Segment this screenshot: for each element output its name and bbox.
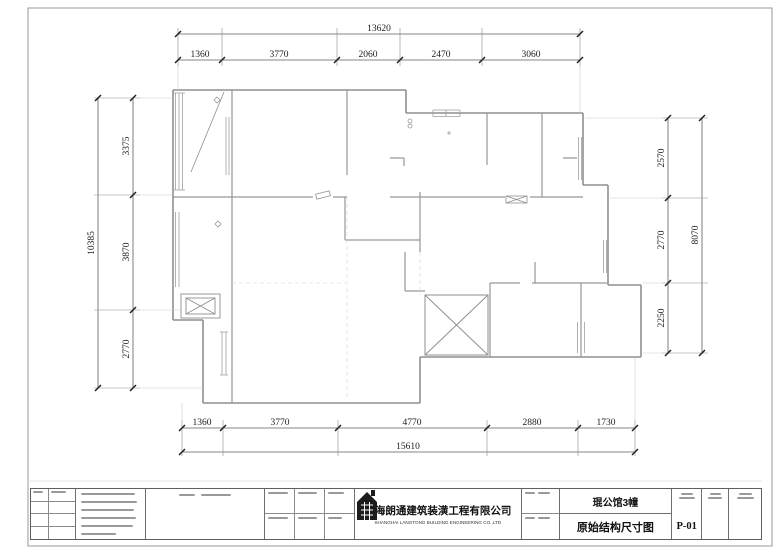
door-leaf	[316, 191, 331, 199]
dim-bottom-seg: 3770	[271, 418, 290, 428]
process-cells	[522, 489, 560, 539]
title-block: 上海朗通建筑装潢工程有限公司 SHANGHAI LANGTONG BUILDIN…	[30, 488, 762, 540]
dim-bottom-seg: 1360	[193, 418, 212, 428]
drawing-canvas: 13620 1360 3770 2060 2470 3060 1360 3770…	[0, 0, 780, 553]
drawing-number: P-01	[672, 521, 701, 532]
outer-walls	[173, 90, 641, 403]
company-logo-icon	[355, 489, 379, 521]
cad-sheet: 13620 1360 3770 2060 2470 3060 1360 3770…	[0, 0, 780, 553]
interior-walls	[173, 90, 607, 403]
elevator-shaft	[425, 295, 488, 355]
dimension-chain-bottom: 1360 3770 4770 2880 1730 15610	[193, 418, 616, 452]
dimension-chain-left: 10385 3375 3870 2770	[87, 136, 132, 358]
dim-top-seg: 2470	[432, 50, 451, 60]
dimension-lines	[98, 34, 702, 452]
floor-plan	[173, 90, 641, 403]
dim-bottom-seg: 2880	[523, 418, 542, 428]
project-name: 琨公馆3幢	[593, 494, 639, 509]
dim-top-seg: 3770	[270, 50, 289, 60]
dim-left-seg: 2770	[122, 339, 132, 358]
dim-right-total: 8070	[691, 225, 701, 244]
dim-top-total: 13620	[367, 24, 391, 34]
dimension-ticks	[95, 31, 705, 455]
dim-left-total: 10385	[87, 231, 97, 255]
signature-grid	[265, 489, 355, 539]
dim-top-seg: 1360	[191, 50, 210, 60]
dim-right-seg: 2570	[657, 148, 667, 167]
date-cell	[729, 489, 761, 539]
dimension-chain-right: 2570 2770 2250 8070	[657, 148, 701, 327]
dim-right-seg: 2770	[657, 230, 667, 249]
fixture-symbols	[214, 97, 451, 227]
revision-table	[31, 489, 76, 539]
door-symbols	[191, 92, 527, 203]
balcony-door-swing	[191, 92, 224, 172]
dim-left-seg: 3375	[122, 136, 132, 155]
dim-bottom-seg: 4770	[403, 418, 422, 428]
dim-bottom-seg: 1730	[597, 418, 616, 428]
dim-top-seg: 3060	[522, 50, 541, 60]
drawing-number-cell: P-01	[672, 489, 702, 539]
dim-left-seg: 3870	[122, 242, 132, 261]
construction-lines	[232, 197, 420, 400]
company-name-cn: 上海朗通建筑装潢工程有限公司	[359, 503, 517, 518]
witness-lines	[94, 28, 708, 456]
company-cell: 上海朗通建筑装潢工程有限公司 SHANGHAI LANGTONG BUILDIN…	[355, 489, 522, 539]
scale-cell	[702, 489, 729, 539]
description-cell	[146, 489, 266, 539]
company-name-en: SHANGHAI LANGTONG BUILDING ENGINEERING C…	[365, 520, 510, 526]
project-cell: 琨公馆3幢 原始结构尺寸图	[560, 489, 673, 539]
sheet-border	[28, 8, 772, 546]
flue-shaft	[181, 294, 220, 318]
dim-right-seg: 2250	[657, 308, 667, 327]
dimension-chain-top: 13620 1360 3770 2060 2470 3060	[191, 24, 541, 60]
drawing-title: 原始结构尺寸图	[577, 519, 654, 535]
dim-bottom-total: 15610	[396, 442, 420, 452]
notes-block	[76, 489, 146, 539]
dim-top-seg: 2060	[359, 50, 378, 60]
double-door	[506, 196, 527, 203]
